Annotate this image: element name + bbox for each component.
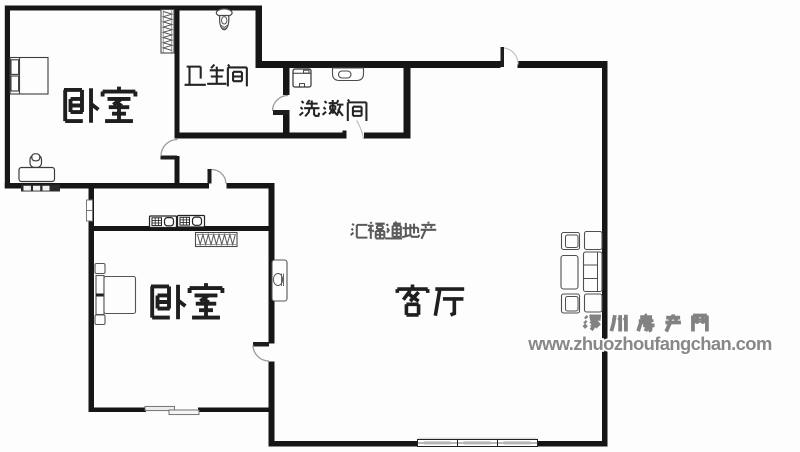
svg-text:www.zhuozhoufangchan.com: www.zhuozhoufangchan.com bbox=[527, 333, 772, 354]
